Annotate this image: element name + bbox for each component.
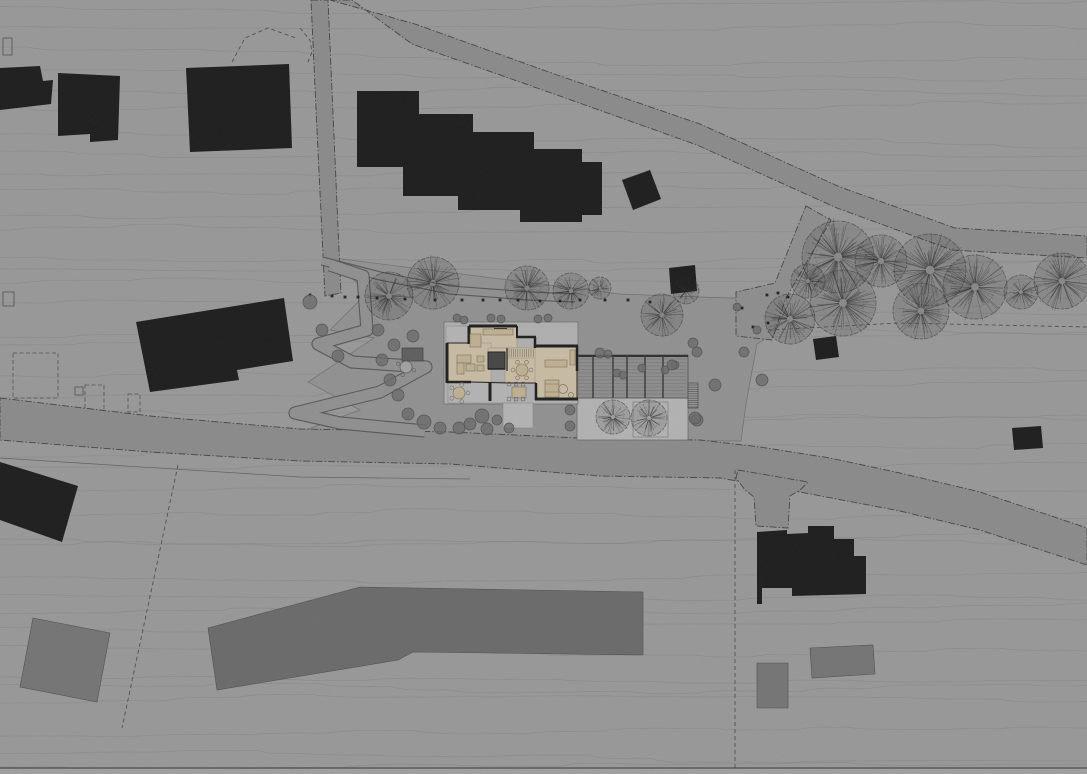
site-plan-stage	[0, 0, 1087, 774]
site-plan-svg	[0, 0, 1087, 774]
paper-grain-overlay	[0, 0, 1087, 774]
grain-light	[0, 0, 1087, 774]
